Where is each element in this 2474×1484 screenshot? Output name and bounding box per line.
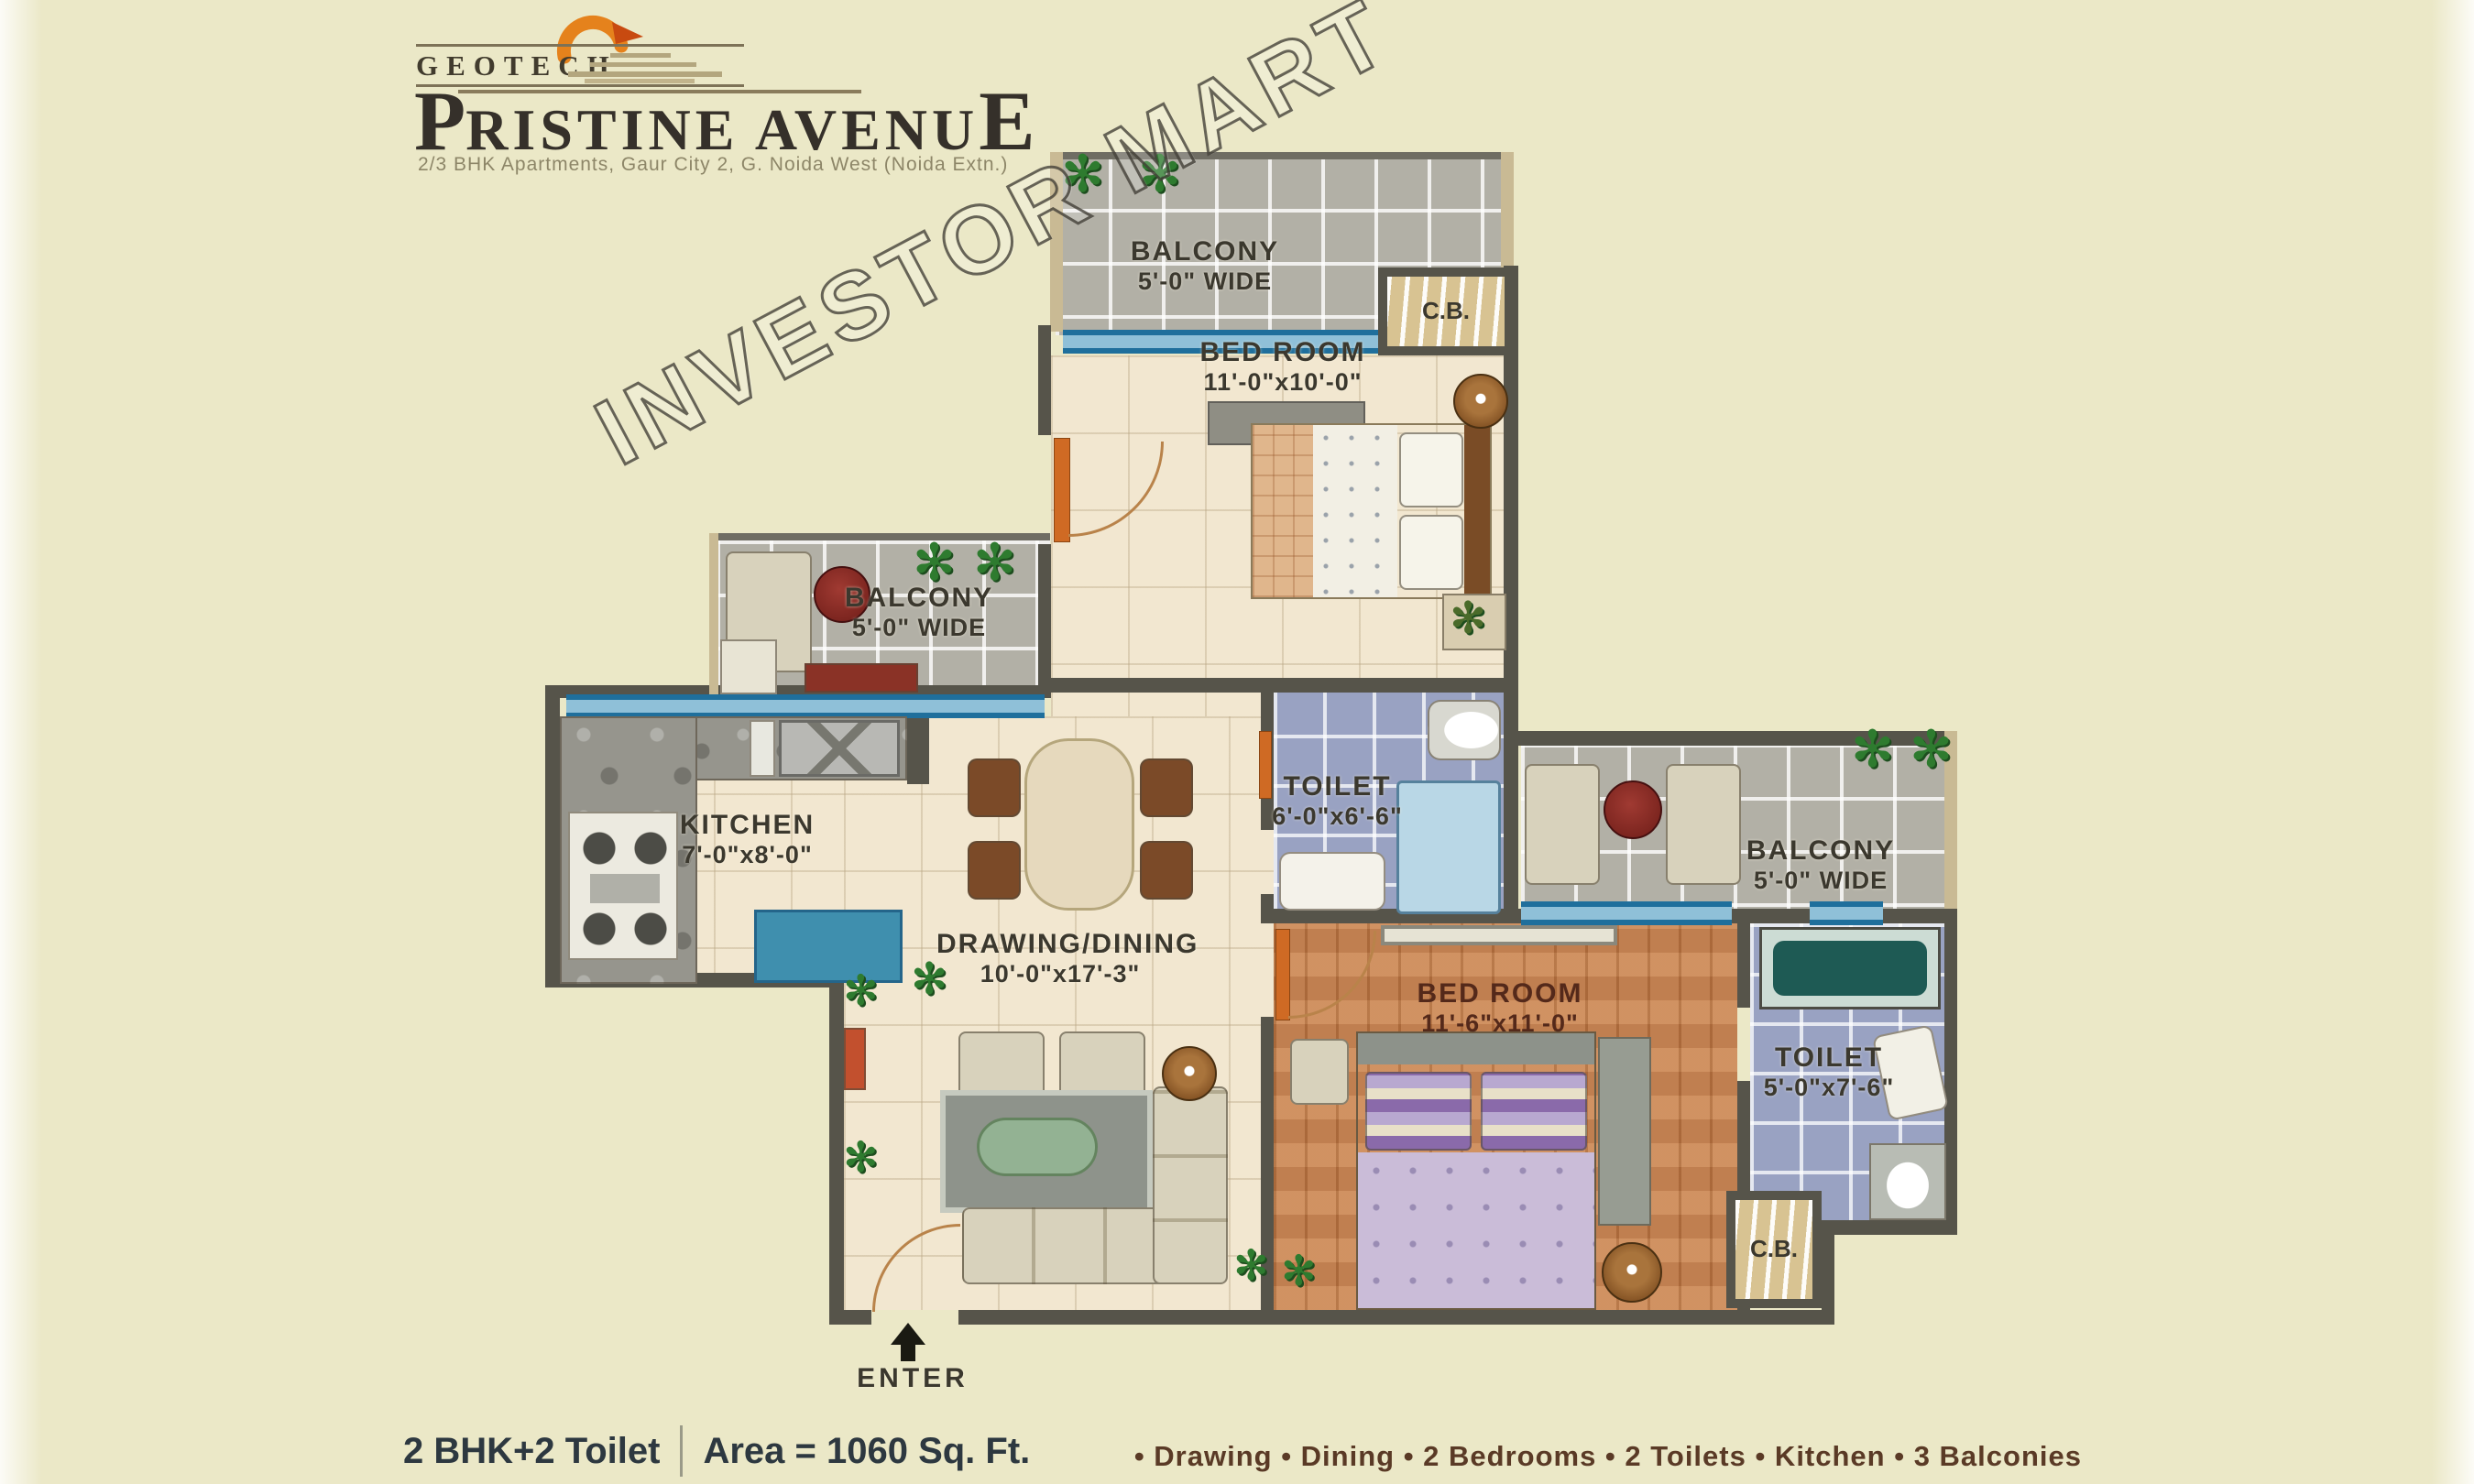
wall [1038, 325, 1051, 435]
drawing-armchair [1059, 1031, 1145, 1097]
bed2-pillow-1 [1365, 1072, 1472, 1151]
project-title: PRISTINE AVENUE [414, 79, 1035, 163]
wall [1038, 544, 1051, 696]
balcony-right-table [1604, 780, 1662, 839]
logo-rule-top [416, 44, 744, 47]
footer-config-area: 2 BHK+2 Toilet Area = 1060 Sq. Ft. [403, 1425, 1030, 1477]
drawing-dining-label: DRAWING/DINING 10'-0"x17'-3" [936, 929, 1184, 988]
footer-features: • Drawing • Dining • 2 Bedrooms • 2 Toil… [1134, 1440, 2082, 1473]
plant-icon: ✻ [843, 969, 879, 1011]
bed1-pillow-1 [1399, 432, 1463, 507]
wall [829, 1310, 871, 1325]
toilet1-basin [1279, 852, 1385, 911]
room-size: 5'-0" WIDE [1127, 267, 1283, 296]
wall [1944, 909, 1957, 1235]
drawing-sofa-right [1153, 1086, 1228, 1284]
plant-icon: ✻ [973, 537, 1016, 588]
enter-arrow-icon [891, 1323, 925, 1345]
room-size: 5'-0" WIDE [841, 614, 997, 642]
room-name: BED ROOM [1196, 337, 1370, 368]
wall [545, 685, 560, 988]
bed1-pillow-2 [1399, 515, 1463, 590]
dining-chair [1140, 841, 1193, 900]
plant-icon: ✻ [1910, 724, 1953, 775]
bed1-headboard [1464, 425, 1490, 597]
bedroom2-label: BED ROOM 11'-6"x11'-0" [1413, 978, 1587, 1038]
cb-top-text: C.B. [1422, 297, 1470, 324]
bed1-blanket [1253, 425, 1313, 597]
wall [1038, 678, 1518, 693]
bed2-headboard [1358, 1033, 1594, 1064]
bedroom2-wardrobe [1598, 1037, 1651, 1226]
room-name: BALCONY [1127, 236, 1283, 267]
footer-divider [680, 1425, 683, 1477]
config-text: 2 BHK+2 Toilet [403, 1431, 660, 1472]
plant-icon: ✻ [1851, 724, 1894, 775]
plant-icon: ✻ [1233, 1244, 1269, 1286]
balcony-left-label: BALCONY 5'-0" WIDE [841, 583, 997, 642]
bed2-pillow-2 [1481, 1072, 1587, 1151]
wall [829, 973, 844, 1325]
kitchen-sink [779, 720, 900, 777]
balcony-top-label: BALCONY 5'-0" WIDE [1127, 236, 1283, 296]
toilet2-label: TOILET 5'-0"x7'-6" [1756, 1042, 1902, 1102]
floorplan-page: GEOTECH PRISTINE AVENUE 2/3 BHK Apartmen… [0, 0, 2474, 1484]
room-size: 11'-6"x11'-0" [1413, 1009, 1587, 1038]
bed2-blanket [1358, 1152, 1594, 1308]
left-edge-fade [0, 0, 42, 1484]
wall [958, 1310, 1261, 1325]
bedroom2-wardrobe-strip [1381, 925, 1617, 945]
drawing-sofa-bottom [962, 1207, 1178, 1284]
enter-label: ENTER [848, 1363, 977, 1394]
cupboard-bottom-label: C.B. [1726, 1237, 1822, 1260]
kitchen-wash-counter [754, 910, 903, 983]
kitchen-stove [568, 812, 678, 960]
balcony-right-chair [1525, 764, 1600, 885]
toilet1-wc [1428, 700, 1501, 760]
plant-icon: ✻ [1281, 1249, 1317, 1292]
toilet1-shower [1396, 780, 1501, 914]
room-size: 5'-0"x7'-6" [1756, 1074, 1902, 1102]
bedroom2-bed [1356, 1031, 1596, 1310]
bedroom2-round-table [1602, 1242, 1662, 1303]
kitchen-cutting-board [750, 720, 775, 777]
kitchen-label: KITCHEN 7'-0"x8'-0" [667, 810, 827, 869]
room-size: 5'-0" WIDE [1743, 867, 1899, 895]
wall [1737, 923, 1750, 1008]
bed1-sheet [1313, 425, 1397, 597]
room-name: BALCONY [1743, 835, 1899, 867]
area-text: Area = 1060 Sq. Ft. [703, 1431, 1030, 1472]
balcony-left-ledge [720, 639, 777, 694]
wall [1822, 1220, 1834, 1325]
cb-bottom-text: C.B. [1750, 1235, 1798, 1262]
balcony-left-bench [805, 663, 918, 693]
balcony-left-side-parapet [709, 533, 718, 698]
room-size: 6'-0"x6'-6" [1266, 802, 1408, 831]
bedroom2-side-table [1290, 1039, 1349, 1105]
drawing-console [844, 1028, 866, 1090]
drawing-armchair [958, 1031, 1045, 1097]
bedroom1-label: BED ROOM 11'-0"x10'-0" [1196, 337, 1370, 397]
window-bedroom2-balcony [1521, 901, 1732, 925]
bedroom1-side-table [1453, 374, 1508, 429]
window-toilet2 [1810, 901, 1883, 925]
room-size: 11'-0"x10'-0" [1196, 368, 1370, 397]
toilet1-label: TOILET 6'-0"x6'-6" [1266, 771, 1408, 831]
enter-arrow-stem [901, 1345, 915, 1361]
dining-chair [1140, 758, 1193, 817]
toilet2-bathtub-inner [1773, 941, 1927, 996]
balcony-top-right-parapet [1501, 152, 1514, 271]
drawing-center-table [977, 1118, 1098, 1176]
room-name: DRAWING/DINING [936, 929, 1184, 960]
bedroom1-bed [1251, 423, 1492, 599]
plant-icon: ✻ [911, 958, 947, 1002]
dining-chair [968, 841, 1021, 900]
drawing-side-table [1162, 1046, 1217, 1101]
cupboard-top-label: C.B. [1378, 299, 1514, 322]
plant-icon: ✻ [843, 1136, 879, 1178]
enter-text: ENTER [848, 1363, 977, 1394]
room-size: 10'-0"x17'-3" [936, 960, 1184, 988]
room-name: TOILET [1756, 1042, 1902, 1074]
room-size: 7'-0"x8'-0" [667, 841, 827, 869]
balcony-right-chair [1666, 764, 1741, 885]
right-edge-fade [2432, 0, 2474, 1484]
dining-chair [968, 758, 1021, 817]
toilet2-bathtub [1759, 927, 1941, 1009]
title-middle: RISTINE AVENU [465, 97, 979, 162]
plant-icon: ✻ [913, 537, 956, 588]
room-name: BED ROOM [1413, 978, 1587, 1009]
room-name: KITCHEN [667, 810, 827, 841]
dining-table [1024, 738, 1134, 911]
room-name: TOILET [1266, 771, 1408, 802]
project-subtitle: 2/3 BHK Apartments, Gaur City 2, G. Noid… [418, 154, 1008, 176]
brand-header: GEOTECH PRISTINE AVENUE 2/3 BHK Apartmen… [403, 7, 1503, 172]
window-kitchen-balcony [566, 694, 1045, 718]
balcony-right-label: BALCONY 5'-0" WIDE [1743, 835, 1899, 895]
toilet2-wc [1869, 1143, 1946, 1220]
plant-icon: ✻ [1450, 597, 1486, 641]
